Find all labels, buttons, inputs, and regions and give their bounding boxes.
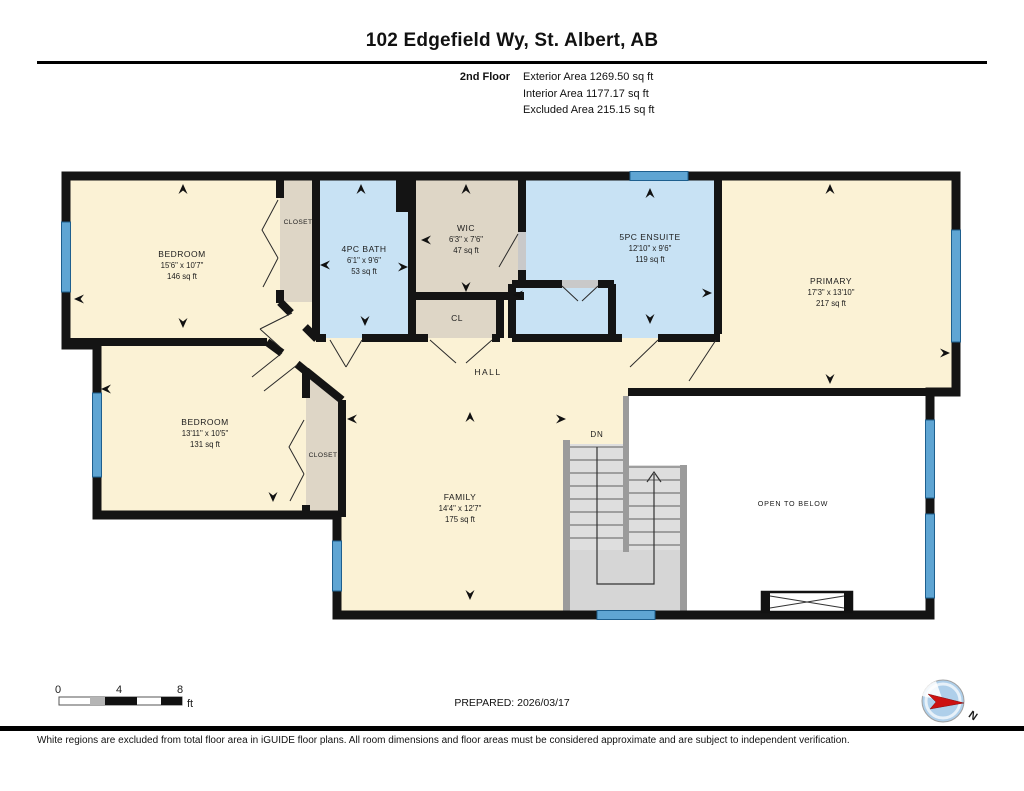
closet1-label: CLOSET [284,219,313,226]
primary-area: 217 sq ft [816,299,847,308]
family-area: 175 sq ft [445,515,476,524]
disclaimer-text: White regions are excluded from total fl… [37,735,997,746]
bath-name: 4PC BATH [342,244,387,254]
window [333,541,342,591]
bath-dims: 6'1" x 9'6" [347,256,381,265]
door-gap-wic [518,232,526,270]
floorplan-page: 102 Edgefield Wy, St. Albert, AB 2nd Flo… [0,0,1024,791]
open-to-below-label: OPEN TO BELOW [758,499,828,508]
stair-wall-right [680,465,687,612]
hall-label: HALL [474,367,501,377]
stair-wall-center [623,396,629,552]
compass-north-label: N [966,709,979,723]
window [630,172,688,181]
bath-area: 53 sq ft [351,267,377,276]
prepared-date: PREPARED: 2026/03/17 [312,697,712,709]
ensuite-area: 119 sq ft [635,255,665,264]
ensuite-dims: 12'10" x 9'6" [629,244,672,253]
bedroom2-name: BEDROOM [181,417,228,427]
window [926,420,935,498]
cl-label: CL [451,313,463,323]
stair-wall-left [563,440,570,612]
bedroom2-dims: 13'11" x 10'5" [182,429,229,438]
family-name: FAMILY [444,492,477,502]
scale-tick-8: 8 [177,684,183,696]
wic-name: WIC [457,223,475,233]
wic-area: 47 sq ft [453,246,479,255]
scale-bar: 0 4 8 ft [45,682,235,722]
bedroom2-area: 131 sq ft [190,440,221,449]
floor-plan: BEDROOM 15'6" x 10'7" 146 sq ft CLOSET 4… [0,0,1024,660]
primary-name: PRIMARY [810,276,852,286]
door-gap-vestibule [562,280,598,288]
footer-divider [0,726,1024,731]
bedroom1-area: 146 sq ft [167,272,198,281]
room-closet-1 [280,176,316,302]
compass: N [913,675,998,731]
window [952,230,961,342]
fireplace [762,592,852,612]
window [62,222,71,292]
scale-tick-0: 0 [55,684,61,696]
scale-tick-4: 4 [116,684,122,696]
window [597,611,655,620]
bedroom1-dims: 15'6" x 10'7" [161,261,204,270]
primary-dims: 17'3" x 13'10" [807,288,854,297]
ensuite-name: 5PC ENSUITE [619,232,680,242]
closet2-label: CLOSET [309,452,338,459]
wall-block [396,172,414,212]
stairs-down-label: DN [590,430,603,439]
wic-dims: 6'3" x 7'6" [449,235,483,244]
bedroom1-name: BEDROOM [158,249,205,259]
window [926,514,935,598]
family-dims: 14'4" x 12'7" [439,504,482,513]
scale-unit: ft [187,698,193,710]
window [93,393,102,477]
